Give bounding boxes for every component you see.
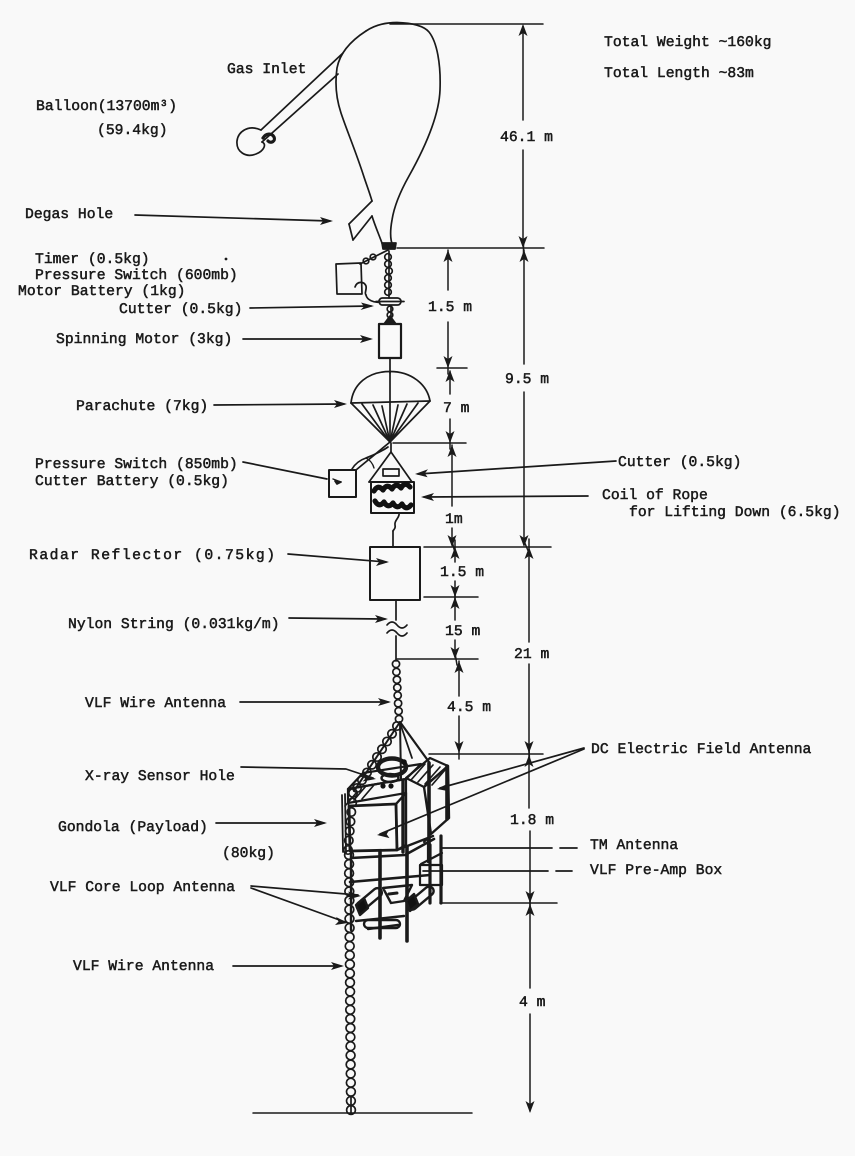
svg-text:Cutter Battery (0.5kg): Cutter Battery (0.5kg) bbox=[35, 474, 229, 490]
svg-text:VLF Wire Antenna: VLF Wire Antenna bbox=[85, 696, 226, 712]
svg-text:1m: 1m bbox=[445, 512, 463, 528]
svg-text:Cutter (0.5kg): Cutter (0.5kg) bbox=[618, 455, 741, 471]
svg-text:Timer (0.5kg): Timer (0.5kg) bbox=[35, 252, 150, 268]
svg-text:Gondola (Payload): Gondola (Payload) bbox=[58, 820, 208, 836]
svg-text:Nylon String (0.031kg/m): Nylon String (0.031kg/m) bbox=[68, 617, 280, 633]
svg-text:Gas Inlet: Gas Inlet bbox=[227, 62, 306, 78]
svg-text:Cutter (0.5kg): Cutter (0.5kg) bbox=[119, 302, 242, 318]
svg-text:VLF Pre-Amp Box: VLF Pre-Amp Box bbox=[590, 863, 722, 879]
svg-text:VLF Core Loop Antenna: VLF Core Loop Antenna bbox=[50, 880, 235, 896]
svg-text:Radar Reflector (0.75kg): Radar Reflector (0.75kg) bbox=[29, 548, 277, 564]
svg-text:X-ray Sensor Hole: X-ray Sensor Hole bbox=[85, 769, 235, 785]
svg-text:7 m: 7 m bbox=[443, 401, 470, 417]
svg-text:15 m: 15 m bbox=[445, 624, 480, 640]
svg-text:TM Antenna: TM Antenna bbox=[590, 838, 678, 854]
svg-text:4 m: 4 m bbox=[519, 995, 546, 1011]
svg-text:VLF Wire Antenna: VLF Wire Antenna bbox=[73, 959, 214, 975]
svg-text:Pressure Switch (850mb): Pressure Switch (850mb) bbox=[35, 457, 238, 473]
svg-text:46.1 m: 46.1 m bbox=[500, 130, 553, 146]
svg-text:Balloon(13700m³): Balloon(13700m³) bbox=[36, 99, 177, 115]
svg-text:9.5 m: 9.5 m bbox=[505, 372, 549, 388]
svg-text:Motor Battery (1kg): Motor Battery (1kg) bbox=[18, 284, 185, 300]
svg-text:Degas Hole: Degas Hole bbox=[25, 207, 113, 223]
svg-text:Coil of Rope: Coil of Rope bbox=[602, 488, 708, 504]
svg-text:1.5 m: 1.5 m bbox=[428, 300, 472, 316]
svg-text:Parachute (7kg): Parachute (7kg) bbox=[76, 399, 208, 415]
svg-text:(59.4kg): (59.4kg) bbox=[97, 123, 168, 139]
svg-text:21 m: 21 m bbox=[514, 647, 549, 663]
svg-text:DC Electric Field Antenna: DC Electric Field Antenna bbox=[591, 742, 812, 758]
svg-text:for Lifting Down (6.5kg): for Lifting Down (6.5kg) bbox=[629, 505, 841, 521]
svg-text:(80kg): (80kg) bbox=[222, 846, 275, 862]
svg-text:4.5 m: 4.5 m bbox=[447, 700, 491, 716]
svg-text:Total Length ~83m: Total Length ~83m bbox=[604, 66, 754, 82]
svg-text:Total Weight ~160kg: Total Weight ~160kg bbox=[604, 35, 771, 51]
svg-text:1.5 m: 1.5 m bbox=[440, 565, 484, 581]
svg-text:Spinning Motor (3kg): Spinning Motor (3kg) bbox=[56, 332, 232, 348]
svg-text:1.8 m: 1.8 m bbox=[510, 813, 554, 829]
svg-text:Pressure Switch (600mb): Pressure Switch (600mb) bbox=[35, 268, 238, 284]
